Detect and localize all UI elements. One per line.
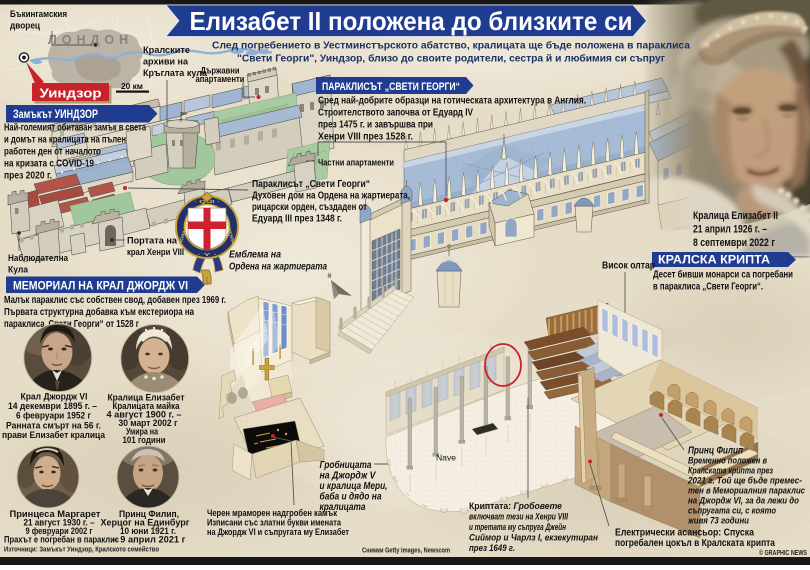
svg-text:Източници: Замъкът Уиндзор, Кр: Източници: Замъкът Уиндзор, Кралското се… [4,546,159,554]
svg-text:След погребението в Уестминстъ: След погребението в Уестминстърското аба… [212,40,690,52]
svg-text:Изписани със златни букви имен: Изписани със златни букви имената [207,518,342,528]
svg-text:на Джордж V: на Джордж V [320,471,377,482]
svg-text:Емблема на: Емблема на [229,250,281,261]
svg-text:Сред най-добрите образци на го: Сред най-добрите образци на готическата … [318,96,586,107]
svg-text:Гробницата: Гробницата [320,460,372,471]
svg-text:8 септември 2022 г: 8 септември 2022 г [693,237,775,249]
svg-text:съпругата си, с която: съпругата си, с която [688,506,776,516]
svg-text:20 км: 20 км [121,82,143,91]
svg-text:Снимки Getty Images, Newscom: Снимки Getty Images, Newscom [362,548,450,555]
svg-text:КРАЛСКА КРИПТА: КРАЛСКА КРИПТА [658,255,770,267]
svg-text:рицарски орден, създаден от: рицарски орден, създаден от [252,202,367,213]
svg-text:Кралските: Кралските [143,45,190,56]
svg-text:и домът на кралицата на пълен: и домът на кралицата на пълен [4,135,126,146]
svg-text:Малък параклис със собствен св: Малък параклис със собствен свод, добаве… [4,295,226,306]
svg-text:Портата на: Портата на [127,236,178,247]
svg-text:работен ден от началото: работен ден от началото [4,147,101,158]
svg-text:Бъкингамския: Бъкингамския [10,9,67,20]
svg-text:– 9 април 2021 г: – 9 април 2021 г [113,535,186,545]
svg-text:през 2020 г.: през 2020 г. [4,171,52,182]
svg-text:през 1649 г.: през 1649 г. [469,543,515,553]
svg-text:на Джордж VI и съпругата му Ел: на Джордж VI и съпругата му Елизабет [207,527,349,537]
svg-text:Частни апартаменти: Частни апартаменти [318,158,394,169]
svg-text:101 години: 101 години [123,435,166,445]
svg-text:и кралица Мери,: и кралица Мери, [320,481,388,492]
svg-text:Крал Джордж VI: Крал Джордж VI [21,392,88,402]
svg-text:Временно положен в: Временно положен в [688,456,767,466]
svg-text:тен в Мемориалния параклис: тен в Мемориалния параклис [688,486,806,496]
svg-text:баба и дядо на: баба и дядо на [320,492,382,503]
svg-text:Кралица Елизабет II: Кралица Елизабет II [693,210,778,222]
svg-text:21 април 1926 г. –: 21 април 1926 г. – [693,224,767,236]
svg-text:ПАРАКЛИСЪТ „СВЕТИ ГЕОРГИ“: ПАРАКЛИСЪТ „СВЕТИ ГЕОРГИ“ [322,81,460,93]
svg-text:Ордена на жартиерата: Ордена на жартиерата [229,262,327,273]
svg-text:Духовен дом на Ордена на жарти: Духовен дом на Ордена на жартиерата, [252,191,410,202]
svg-text:дворец: дворец [10,21,40,32]
svg-text:архиви на: архиви на [143,57,189,68]
svg-text:Хенри VIII през 1528 г.: Хенри VIII през 1528 г. [318,132,413,143]
svg-text:Сиймор и Чарлз I, екзекутиран: Сиймор и Чарлз I, екзекутиран [469,533,598,543]
svg-text:Висок олтар: Висок олтар [602,261,655,272]
svg-text:Електрически асансьор: Спуска: Електрически асансьор: Спуска [615,528,754,539]
svg-text:Едуард III през 1348 г.: Едуард III през 1348 г. [252,214,342,225]
svg-text:Наблюдателна: Наблюдателна [8,253,69,264]
svg-text:МЕМОРИАЛ НА КРАЛ ДЖОРДЖ VI: МЕМОРИАЛ НА КРАЛ ДЖОРДЖ VI [13,281,188,293]
svg-text:© GRAPHIC NEWS: © GRAPHIC NEWS [759,549,807,557]
svg-text:"Свети Георги", Уиндзор, близо: "Свети Георги", Уиндзор, близо до своите… [237,53,665,65]
svg-text:крал Хенри VIII: крал Хенри VIII [127,247,184,258]
svg-text:на Джордж VI, за да лежи до: на Джордж VI, за да лежи до [688,496,799,506]
svg-text:Черен мраморен надгробен камък: Черен мраморен надгробен камък [207,508,337,518]
svg-text:в параклиса „Свети Георги“.: в параклиса „Свети Георги“. [653,282,763,293]
svg-text:Nave: Nave [436,453,456,463]
svg-text:погребален цокъл в Кралската к: погребален цокъл в Кралската крипта [615,538,775,549]
svg-text:Кула: Кула [8,265,29,276]
svg-text:Строителството започва от Едуа: Строителството започва от Едуард IV [318,108,473,119]
svg-text:Елизабет II положена до близки: Елизабет II положена до близките си [190,6,633,36]
svg-text:включват тези на Хенри VIII: включват тези на Хенри VIII [469,512,568,522]
svg-text:Прахът е погребан в параклис: Прахът е погребан в параклис [4,535,119,545]
svg-text:и третата му съпруга Джейн: и третата му съпруга Джейн [469,522,566,532]
svg-text:през 1475 г. и завършва при: през 1475 г. и завършва при [318,120,433,131]
svg-text:на кризата с COVID-19: на кризата с COVID-19 [4,159,94,170]
svg-text:Замъкът УИНДЗОР: Замъкът УИНДЗОР [13,107,98,121]
svg-text:Първата структурна добавка към: Първата структурна добавка към екстериор… [4,307,194,318]
svg-text:Десет бивши монарси са погреба: Десет бивши монарси са погребани [653,270,793,281]
svg-text:6 февруари 1952 г: 6 февруари 1952 г [16,411,91,421]
svg-text:Ранната смърт на 56 г.: Ранната смърт на 56 г. [6,421,101,431]
svg-text:живя 73 години: живя 73 години [687,516,749,526]
svg-text:14 декември 1895 г. –: 14 декември 1895 г. – [8,401,97,411]
svg-text:Най-големият обитаван замък в: Най-големият обитаван замък в света [4,123,146,134]
svg-text:2021 г. Той ще бъде премес-: 2021 г. Той ще бъде премес- [687,476,802,486]
svg-text:апартаменти: апартаменти [196,74,245,85]
svg-text:Уиндзор: Уиндзор [40,87,102,101]
svg-text:Кралската крипта през: Кралската крипта през [688,466,773,476]
svg-text:прави Елизабет кралица: прави Елизабет кралица [2,430,106,440]
svg-text:· Y ·: · Y · [197,252,217,257]
svg-text:Параклисът „Свети Георги“: Параклисът „Свети Георги“ [252,179,370,190]
svg-text:Криптата: Гробовете: Криптата: Гробовете [469,501,562,511]
